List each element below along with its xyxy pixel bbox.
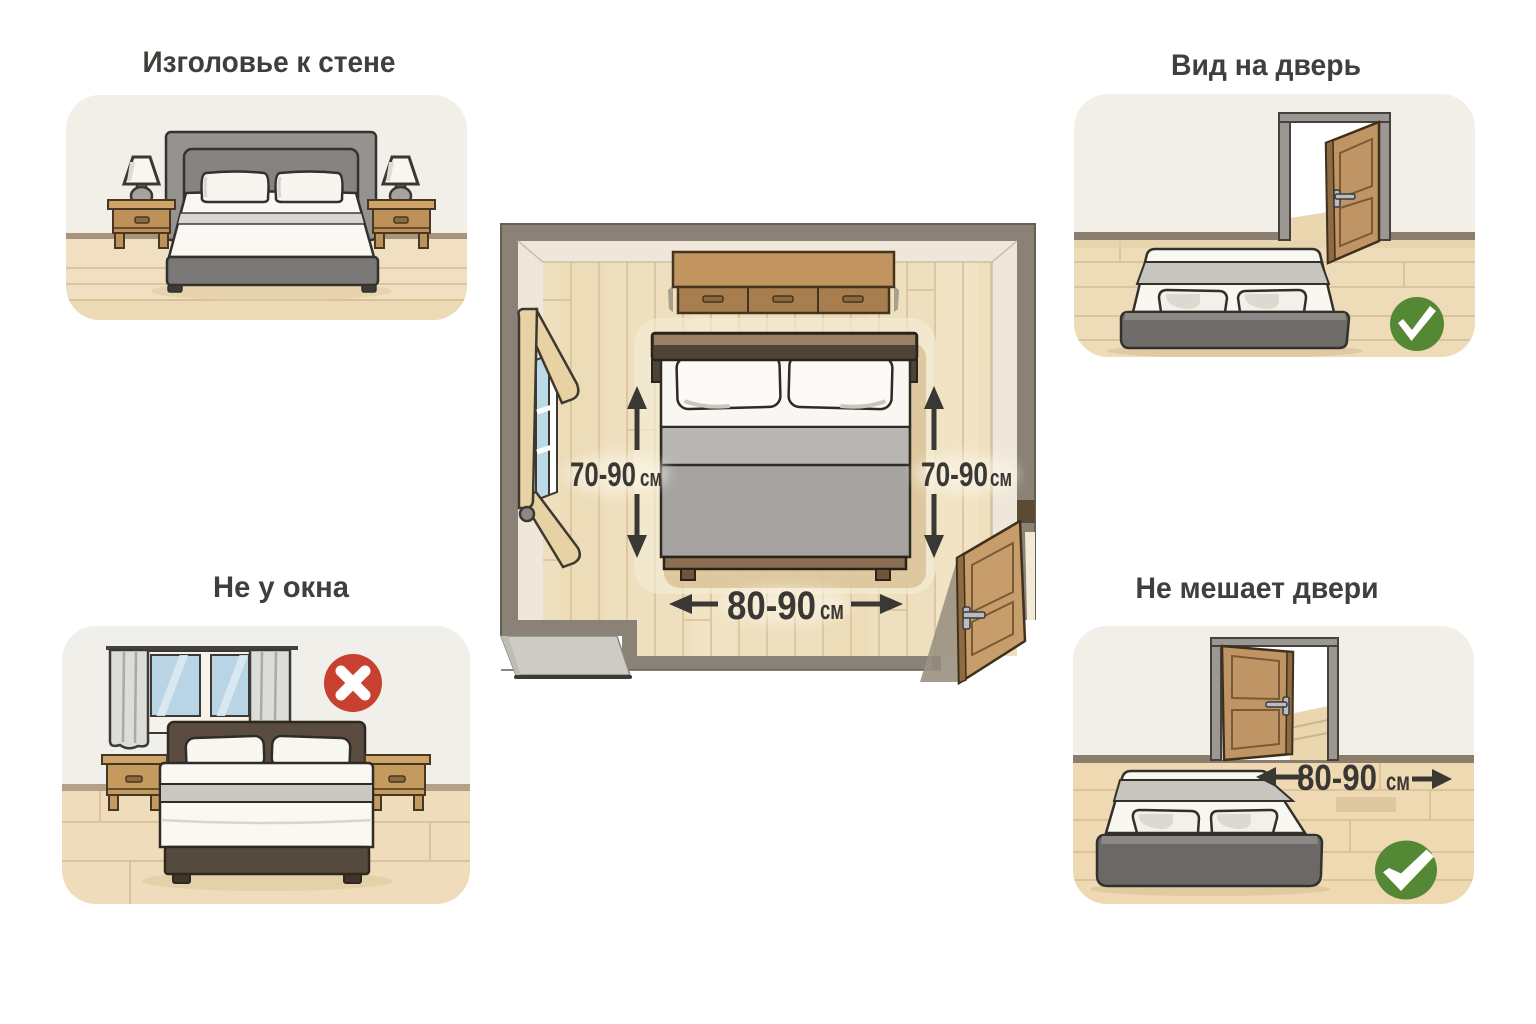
svg-text:см: см: [1386, 768, 1410, 796]
svg-text:70-90: 70-90: [570, 456, 636, 494]
svg-text:80-90: 80-90: [1297, 757, 1377, 798]
svg-text:см: см: [820, 595, 844, 625]
svg-text:80-90: 80-90: [727, 584, 816, 628]
svg-text:см: см: [640, 465, 662, 492]
svg-text:Не мешает двери: Не мешает двери: [1136, 572, 1379, 605]
svg-text:70-90: 70-90: [921, 456, 988, 494]
svg-text:Изголовье к стене: Изголовье к стене: [143, 46, 396, 79]
svg-text:Вид на дверь: Вид на дверь: [1171, 49, 1361, 82]
svg-text:Не у окна: Не у окна: [213, 571, 349, 604]
svg-text:см: см: [990, 465, 1012, 492]
